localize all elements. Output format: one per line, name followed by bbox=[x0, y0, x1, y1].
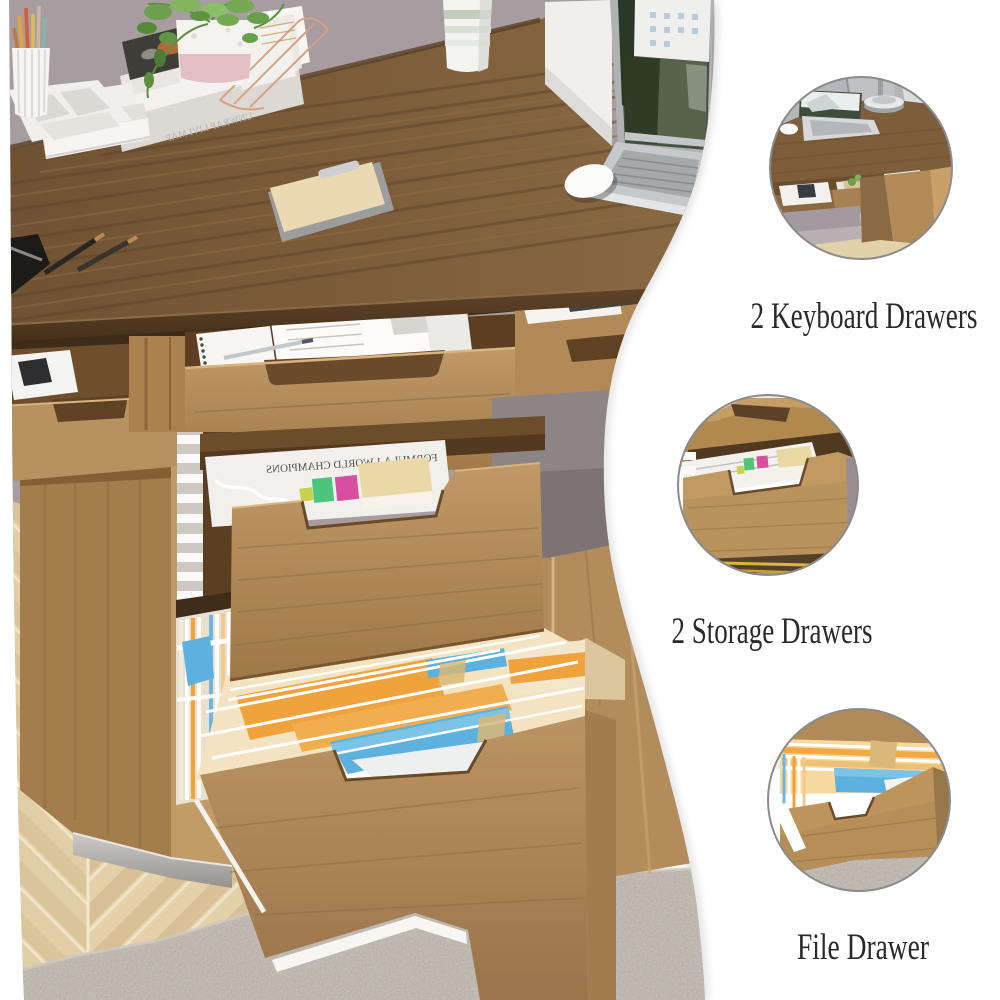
svg-text:2 Storage Drawers: 2 Storage Drawers bbox=[672, 611, 873, 652]
svg-text:2 Keyboard Drawers: 2 Keyboard Drawers bbox=[751, 296, 978, 337]
svg-text:File Drawer: File Drawer bbox=[797, 927, 929, 968]
